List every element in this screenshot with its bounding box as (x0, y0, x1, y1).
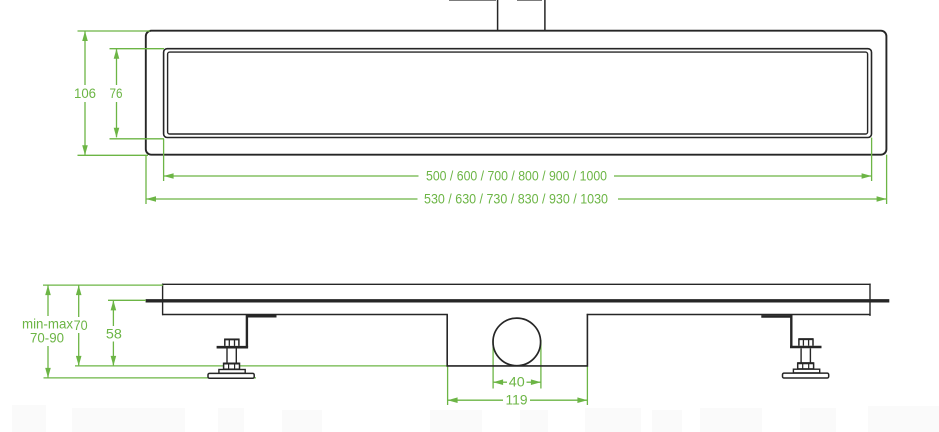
svg-text:106: 106 (74, 85, 96, 101)
svg-text:119: 119 (506, 393, 528, 408)
svg-text:530 / 630 / 730 / 830 / 930 /: 530 / 630 / 730 / 830 / 930 / 1030 (424, 191, 608, 207)
svg-text:76: 76 (110, 85, 123, 101)
svg-text:70: 70 (74, 318, 88, 333)
svg-text:500 / 600 / 700 / 800 / 900 /: 500 / 600 / 700 / 800 / 900 / 1000 (426, 167, 607, 183)
svg-text:58: 58 (106, 327, 122, 342)
svg-text:70-90: 70-90 (30, 330, 64, 345)
svg-text:min-max: min-max (22, 316, 73, 331)
svg-text:40: 40 (509, 375, 525, 390)
